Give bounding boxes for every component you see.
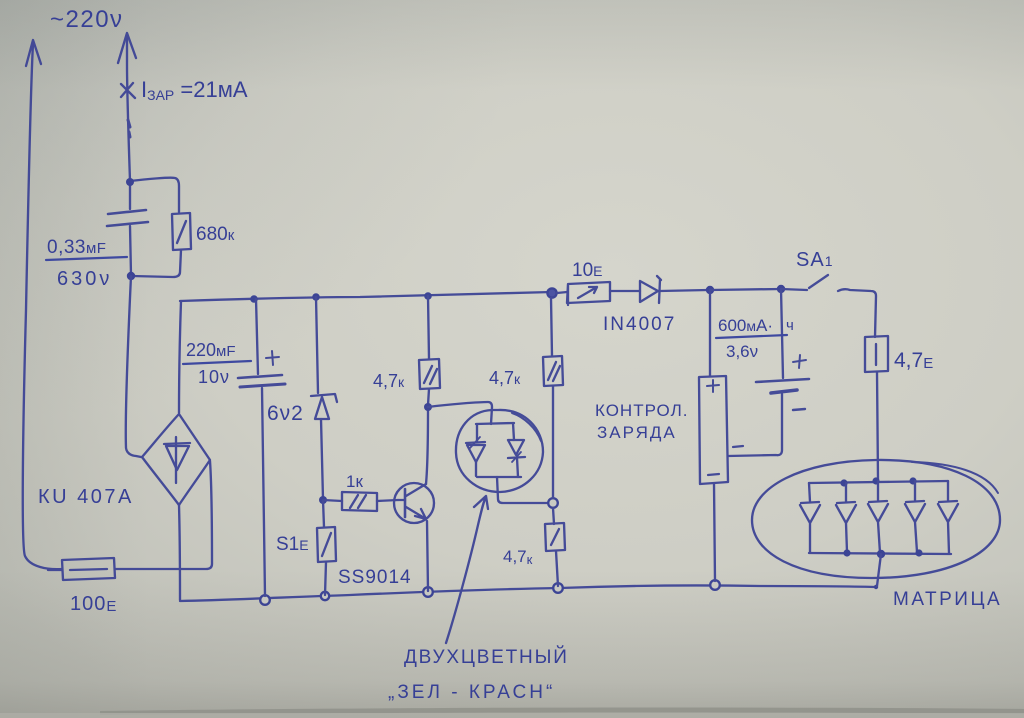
svg-text:4,7к: 4,7к (489, 368, 521, 388)
svg-text:0,33мF: 0,33мF (47, 237, 106, 258)
svg-text:IN4007: IN4007 (603, 314, 676, 335)
svg-text:10ν: 10ν (198, 367, 230, 387)
svg-text:SS9014: SS9014 (338, 567, 412, 588)
svg-text:ч: ч (786, 317, 794, 334)
svg-text:КОНТРОЛ.: КОНТРОЛ. (595, 401, 688, 420)
svg-text:680к: 680к (196, 224, 235, 245)
svg-text:600мА·: 600мА· (718, 316, 773, 335)
svg-text:630ν: 630ν (57, 268, 112, 290)
svg-text:S1Е: S1Е (276, 534, 309, 555)
svg-text:SA1: SA1 (796, 249, 833, 271)
svg-text:„ЗЕЛ - КРАСН“: „ЗЕЛ - КРАСН“ (388, 682, 555, 703)
svg-text:КU 407А: КU 407А (38, 486, 134, 508)
svg-text:10Е: 10Е (572, 260, 602, 281)
svg-text:ДВУХЦВЕТНЫЙ: ДВУХЦВЕТНЫЙ (404, 646, 569, 668)
svg-text:6ν2: 6ν2 (267, 402, 304, 425)
svg-text:4,7к: 4,7к (373, 371, 405, 391)
svg-text:220мF: 220мF (186, 340, 236, 360)
svg-text:1к: 1к (346, 472, 363, 491)
svg-text:~220ν: ~220ν (50, 6, 124, 33)
svg-text:3,6ν: 3,6ν (726, 342, 758, 361)
svg-text:МАТРИЦА: МАТРИЦА (893, 589, 1002, 610)
svg-text:ЗАРЯДА: ЗАРЯДА (597, 423, 677, 442)
